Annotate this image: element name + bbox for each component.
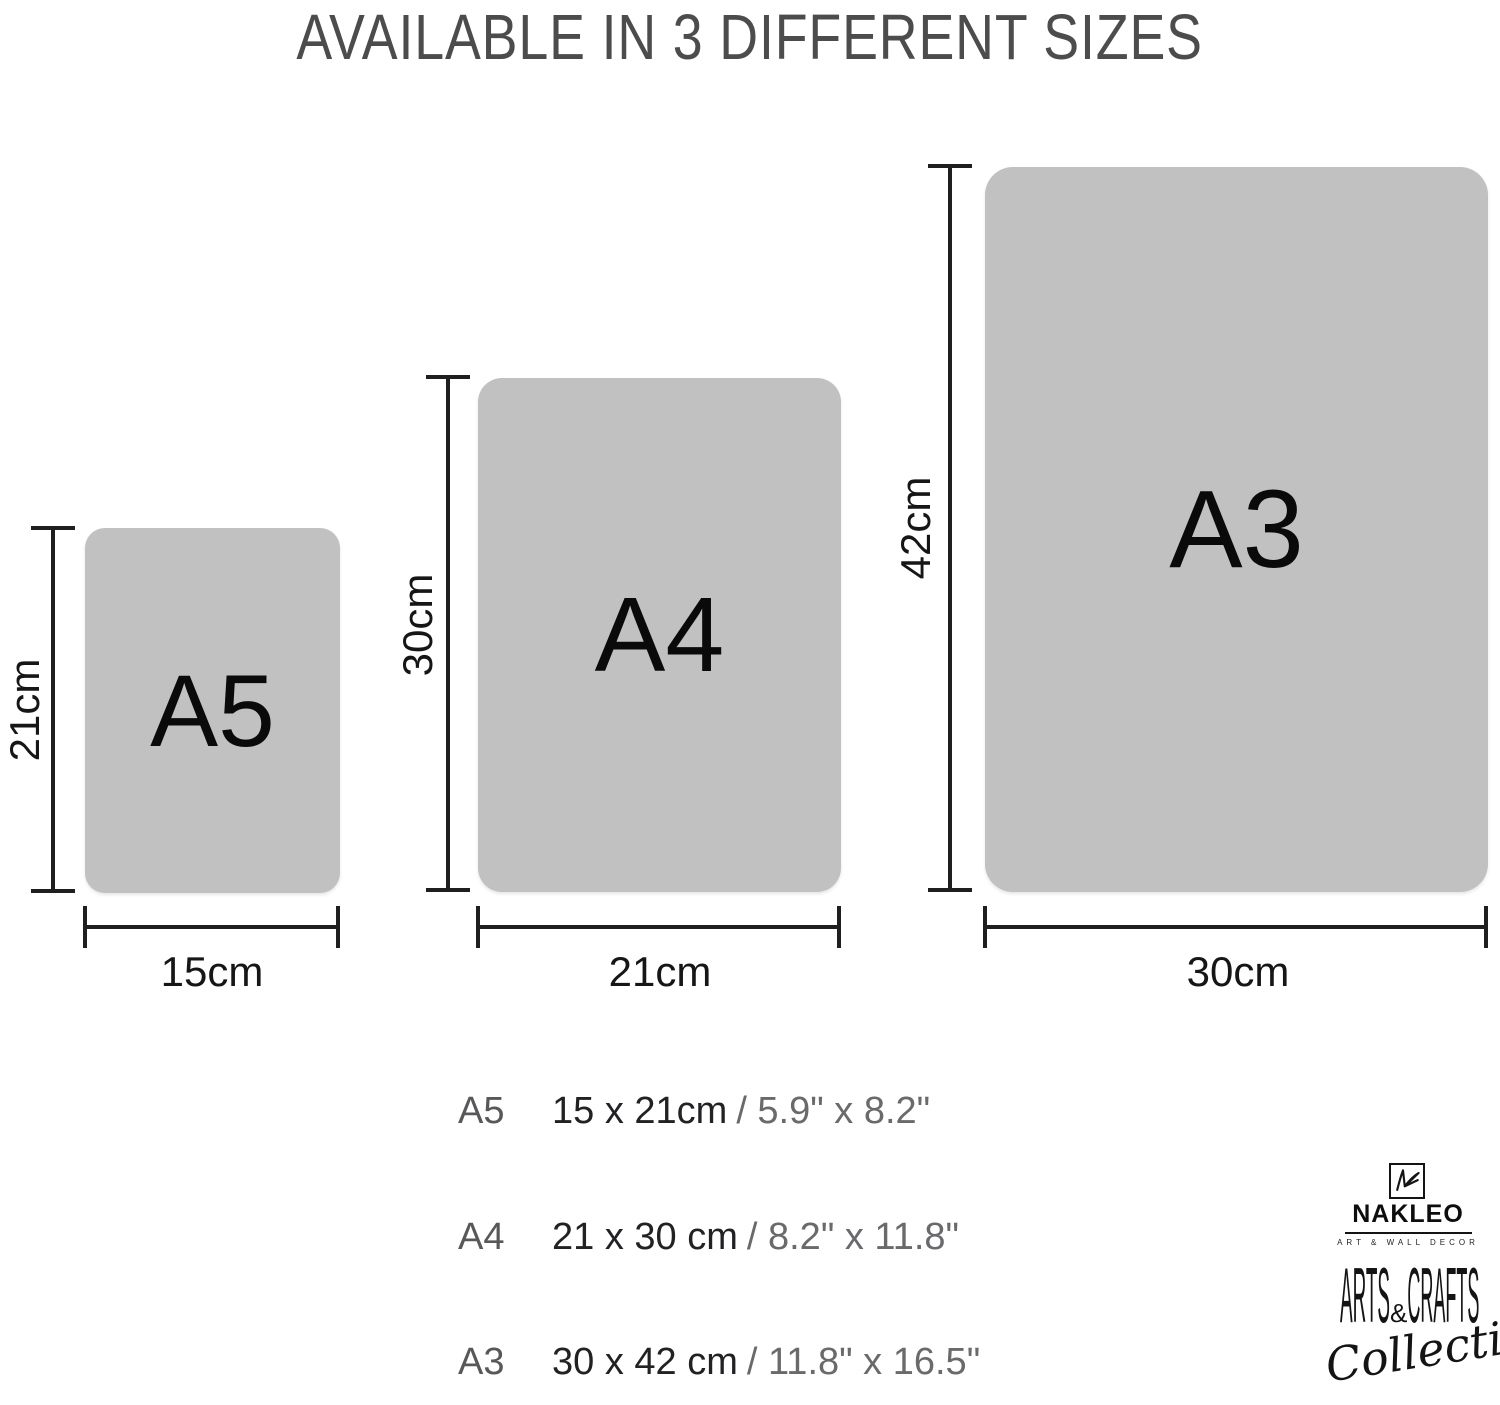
size-list-row-a4: A421 x 30 cm/ 8.2" x 11.8" [458, 1216, 959, 1259]
size-list-imperial: / 8.2" x 11.8" [747, 1216, 959, 1258]
a4-width-dimension-line [478, 925, 841, 929]
a4-height-bottom-tick [426, 888, 470, 892]
a5-height-label: 21cm [1, 659, 49, 762]
a3-height-top-tick [928, 164, 972, 168]
size-list-metric: 15 x 21cm [552, 1090, 727, 1132]
a5-width-label: 15cm [161, 948, 264, 996]
a5-height-bottom-tick [31, 889, 75, 893]
a3-height-label: 42cm [892, 477, 940, 580]
page-title-wrap: AVAILABLE IN 3 DIFFERENT SIZES [0, 0, 1500, 74]
a3-panel-label: A3 [1169, 475, 1304, 585]
a5-height-top-tick [31, 526, 75, 530]
size-guide-diagram: AVAILABLE IN 3 DIFFERENT SIZES 21cm A5 1… [0, 0, 1500, 1405]
size-list-label: A4 [458, 1216, 552, 1259]
brand-tagline: ART & WALL DECOR [1330, 1238, 1486, 1247]
a5-panel-label: A5 [150, 660, 275, 762]
a3-width-dimension-line [985, 925, 1488, 929]
a3-panel: A3 [985, 167, 1488, 892]
a5-width-right-tick [336, 906, 340, 948]
size-list-label: A3 [458, 1341, 552, 1384]
a3-height-bottom-tick [928, 888, 972, 892]
a5-panel: A5 [85, 528, 340, 893]
a5-height-dimension-line [51, 526, 55, 893]
a5-width-dimension-line [85, 925, 340, 929]
brand-divider [1345, 1232, 1472, 1234]
a4-width-label: 21cm [609, 948, 712, 996]
a4-width-left-tick [476, 906, 480, 948]
size-list-metric: 30 x 42 cm [552, 1341, 738, 1383]
nakleo-monogram-icon [1389, 1163, 1425, 1199]
brand-name: NAKLEO [1338, 1200, 1478, 1229]
page-title: AVAILABLE IN 3 DIFFERENT SIZES [297, 0, 1204, 74]
size-list-row-a3: A330 x 42 cm/ 11.8" x 16.5" [458, 1341, 980, 1384]
size-list-label: A5 [458, 1090, 552, 1133]
a4-height-dimension-line [446, 375, 450, 892]
size-list-imperial: / 11.8" x 16.5" [747, 1341, 980, 1383]
a5-width-left-tick [83, 906, 87, 948]
a4-height-label: 30cm [394, 574, 442, 677]
size-list-metric: 21 x 30 cm [552, 1216, 738, 1258]
size-list-row-a5: A515 x 21cm/ 5.9" x 8.2" [458, 1090, 930, 1133]
size-list-imperial: / 5.9" x 8.2" [736, 1090, 930, 1132]
a3-width-right-tick [1484, 906, 1488, 948]
a3-height-dimension-line [948, 164, 952, 892]
a4-height-top-tick [426, 375, 470, 379]
a3-width-label: 30cm [1187, 948, 1290, 996]
a4-width-right-tick [837, 906, 841, 948]
a4-panel: A4 [478, 378, 841, 892]
a3-width-left-tick [983, 906, 987, 948]
a4-panel-label: A4 [595, 582, 725, 688]
